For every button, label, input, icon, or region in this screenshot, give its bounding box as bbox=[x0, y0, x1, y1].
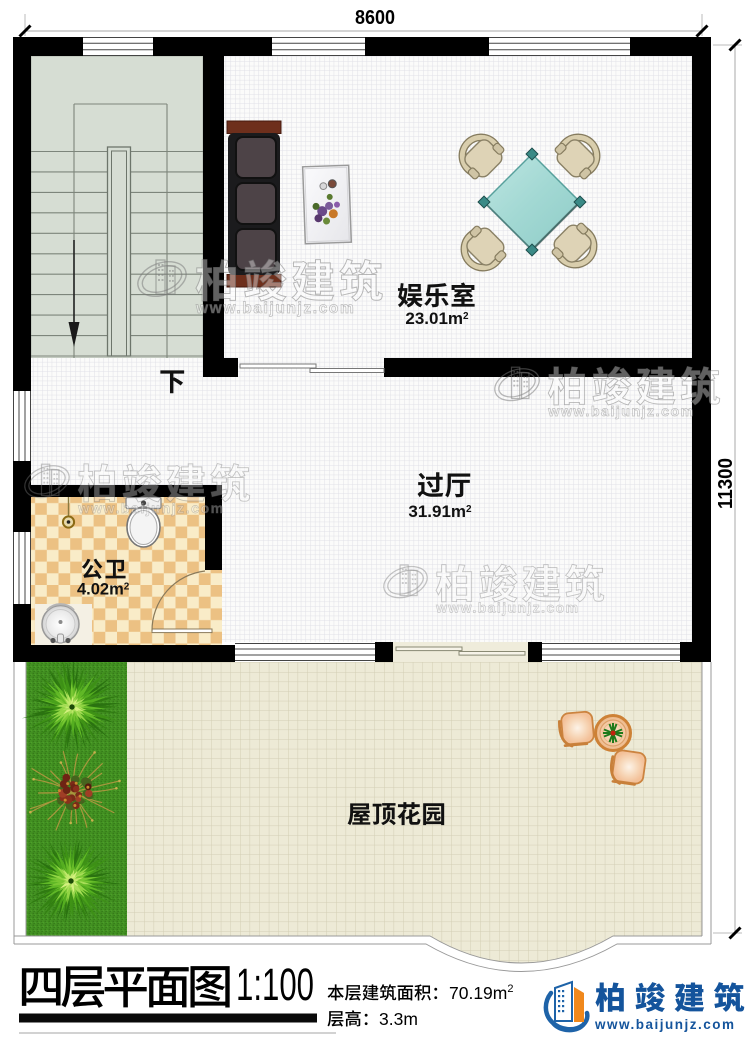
svg-text:31.91m2: 31.91m2 bbox=[408, 502, 472, 521]
svg-text:70.19m2: 70.19m2 bbox=[449, 983, 514, 1003]
svg-text:www.baijunjz.com: www.baijunjz.com bbox=[77, 501, 225, 517]
svg-text:3.3m: 3.3m bbox=[379, 1009, 418, 1029]
svg-text:www.baijunjz.com: www.baijunjz.com bbox=[594, 1017, 736, 1032]
svg-text:11300: 11300 bbox=[714, 458, 737, 509]
svg-text:www.baijunjz.com: www.baijunjz.com bbox=[547, 404, 695, 420]
svg-text:23.01m2: 23.01m2 bbox=[405, 309, 469, 328]
svg-text:1:100: 1:100 bbox=[236, 959, 314, 1010]
svg-text:www.baijunjz.com: www.baijunjz.com bbox=[195, 300, 355, 317]
svg-text:8600: 8600 bbox=[355, 6, 395, 29]
svg-text:4.02m2: 4.02m2 bbox=[77, 581, 130, 599]
svg-text:www.baijunjz.com: www.baijunjz.com bbox=[435, 600, 579, 616]
